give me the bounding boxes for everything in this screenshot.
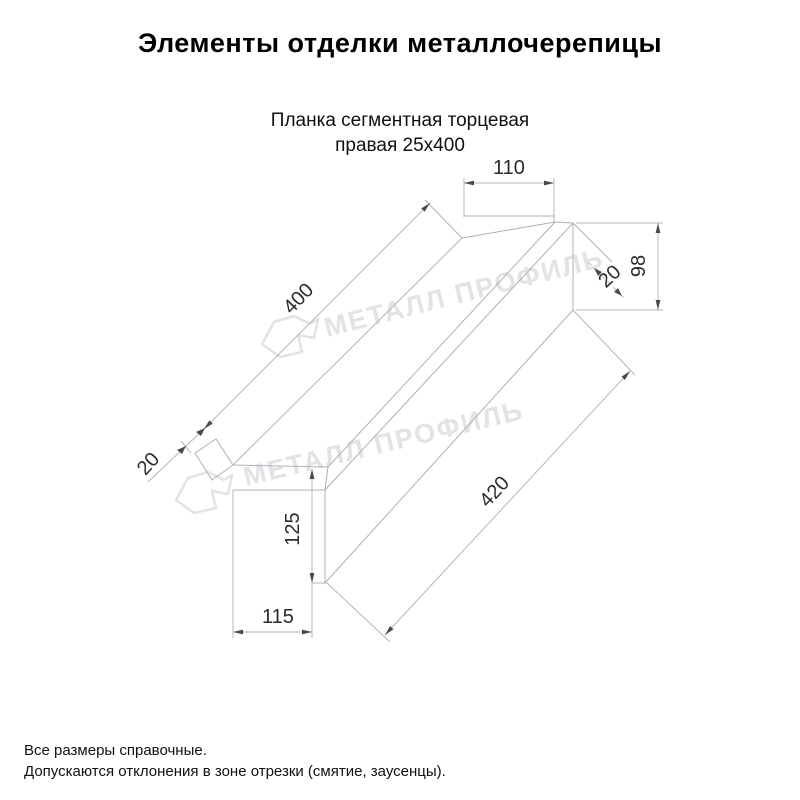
drawing-page: Элементы отделки металлочерепицы Планка … [0,0,800,800]
top-face-right-cut-edge [462,222,555,238]
technical-drawing: МЕТАЛЛ ПРОФИЛЬ МЕТАЛЛ ПРОФИЛЬ [0,0,800,800]
footer-notes: Все размеры справочные. Допускаются откл… [24,740,446,782]
dimension-bottom-length: 420 [327,310,635,642]
dimension-left-height: 125 [282,469,327,583]
dim-400-label: 400 [279,279,318,318]
dim-98-label: 98 [628,255,650,277]
brand-watermark-text: МЕТАЛЛ ПРОФИЛЬ [321,243,607,343]
dimension-top-width: 110 [464,157,554,222]
dim-20-left-label: 20 [133,448,164,479]
brand-logo-icon [176,472,232,513]
footer-note-line2: Допускаются отклонения в зоне отрезки (с… [24,761,446,782]
extension-line [425,200,462,238]
front-face-top-edge [325,223,573,490]
extension-line [327,583,390,642]
dimension-bottom-width: 115 [233,490,312,638]
footer-note-line1: Все размеры справочные. [24,740,446,761]
brand-logo-icon [262,316,318,357]
brand-watermark-upper: МЕТАЛЛ ПРОФИЛЬ [262,243,607,357]
brand-watermark-text: МЕТАЛЛ ПРОФИЛЬ [240,395,526,492]
dim-420-label: 420 [475,472,514,511]
dimension-left-fold: 20 [133,428,205,482]
extension-line [573,310,635,375]
brand-watermark-lower: МЕТАЛЛ ПРОФИЛЬ [176,395,527,513]
step-right-edge [555,222,573,223]
dim-115-label: 115 [262,606,294,628]
dimension-line [148,429,204,482]
dim-110-label: 110 [493,157,525,179]
dim-125-label: 125 [282,512,304,545]
